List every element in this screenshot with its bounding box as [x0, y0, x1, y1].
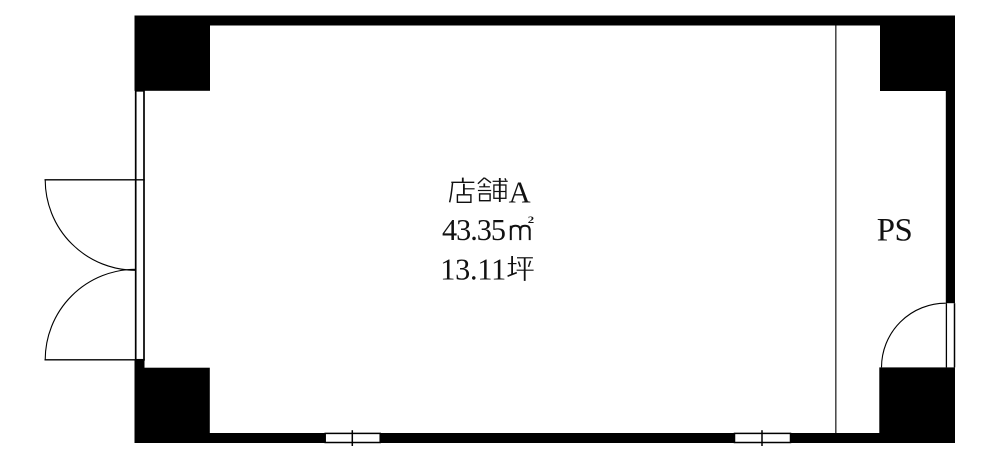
- svg-text:43.35: 43.35: [442, 213, 506, 247]
- svg-text:A: A: [509, 176, 531, 210]
- svg-text:2: 2: [528, 216, 535, 226]
- svg-text:PS: PS: [877, 213, 913, 249]
- svg-text:13.11: 13.11: [440, 253, 506, 287]
